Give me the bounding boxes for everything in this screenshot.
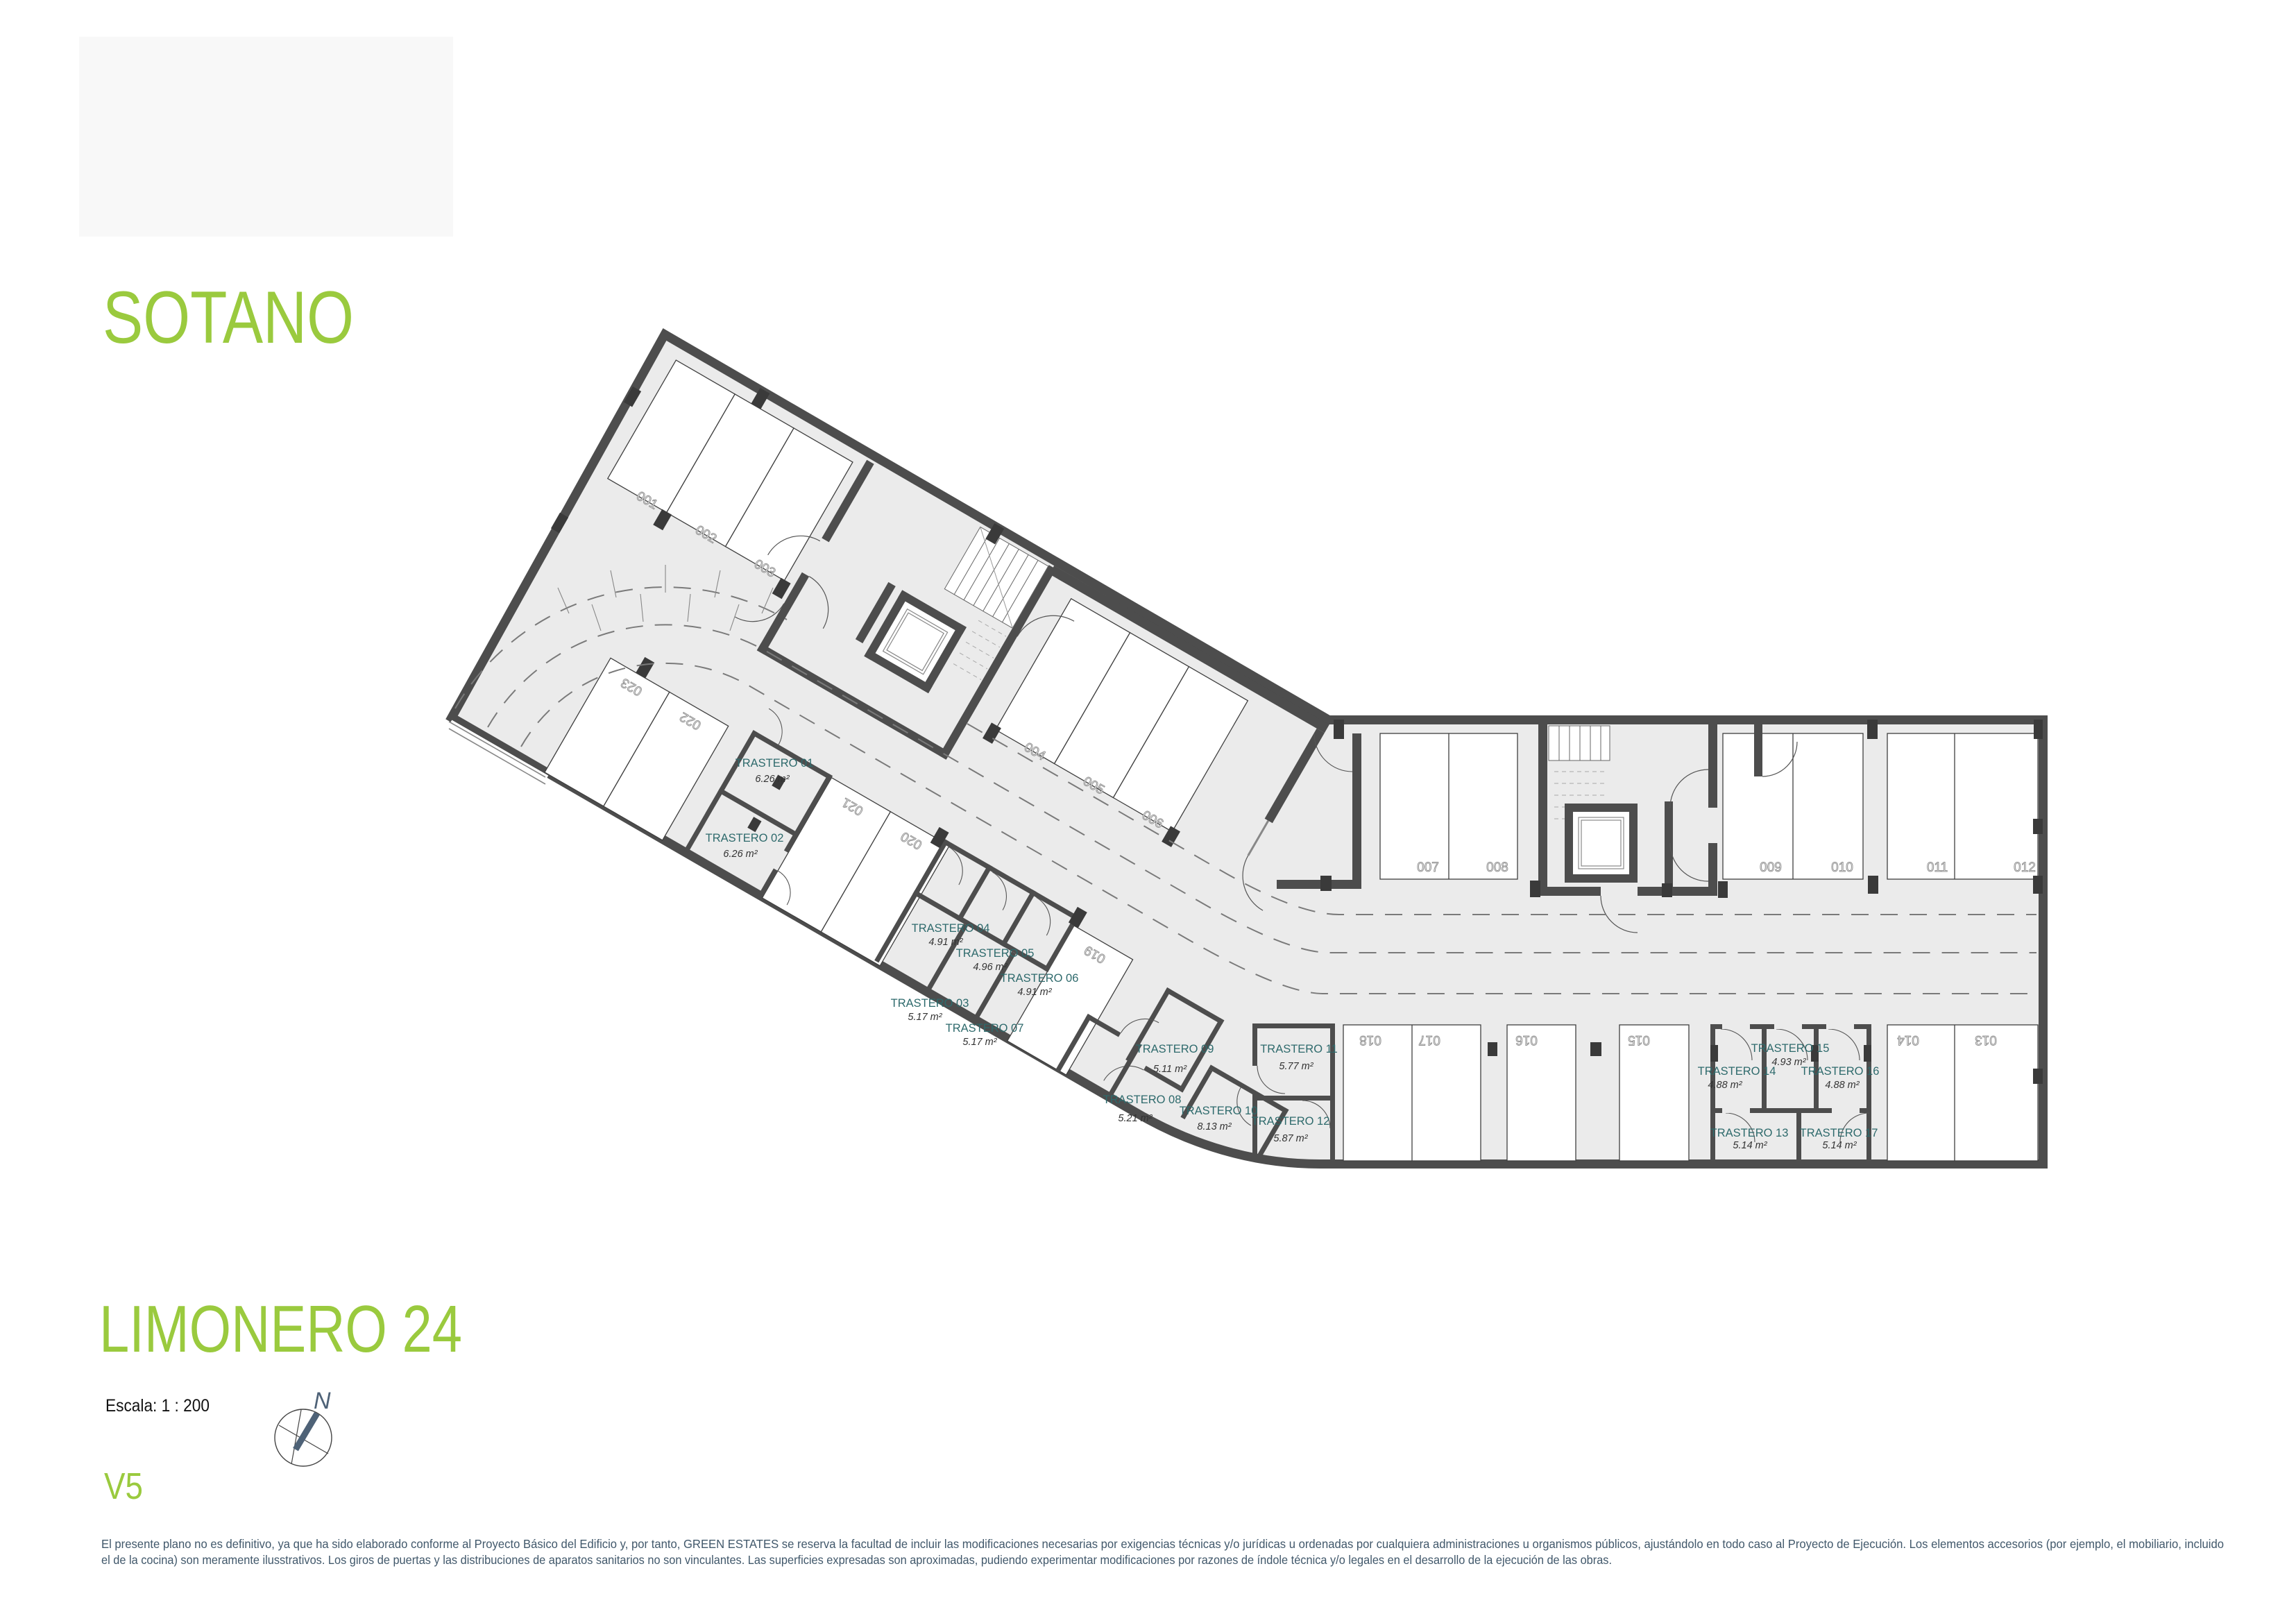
- svg-text:014: 014: [1897, 1033, 1919, 1047]
- svg-text:TRASTERO 17: TRASTERO 17: [1800, 1127, 1878, 1139]
- svg-text:5.14 m²: 5.14 m²: [1733, 1140, 1767, 1151]
- svg-text:TRASTERO 06: TRASTERO 06: [1001, 972, 1079, 985]
- svg-text:6.26 m²: 6.26 m²: [755, 774, 790, 785]
- svg-text:TRASTERO 04: TRASTERO 04: [912, 922, 990, 935]
- svg-text:TRASTERO 07: TRASTERO 07: [946, 1022, 1024, 1035]
- svg-text:5.21 m²: 5.21 m²: [1118, 1113, 1153, 1124]
- svg-text:5.17 m²: 5.17 m²: [962, 1037, 997, 1048]
- svg-text:TRASTERO 05: TRASTERO 05: [956, 947, 1035, 960]
- svg-text:007: 007: [1417, 860, 1439, 875]
- svg-text:TRASTERO 15: TRASTERO 15: [1751, 1042, 1830, 1055]
- svg-text:V5: V5: [104, 1465, 143, 1507]
- svg-text:010: 010: [1831, 860, 1853, 875]
- svg-text:TRASTERO 08: TRASTERO 08: [1103, 1094, 1182, 1106]
- svg-text:TRASTERO 13: TRASTERO 13: [1710, 1127, 1789, 1139]
- svg-text:LIMONERO 24: LIMONERO 24: [99, 1292, 462, 1366]
- svg-text:N: N: [314, 1388, 331, 1414]
- svg-text:009: 009: [1760, 860, 1782, 875]
- svg-text:TRASTERO 09: TRASTERO 09: [1136, 1043, 1214, 1055]
- svg-text:5.17 m²: 5.17 m²: [908, 1012, 942, 1023]
- svg-text:5.87 m²: 5.87 m²: [1273, 1133, 1308, 1144]
- svg-text:8.13 m²: 8.13 m²: [1197, 1121, 1232, 1132]
- svg-text:5.77 m²: 5.77 m²: [1279, 1061, 1313, 1072]
- svg-text:018: 018: [1359, 1033, 1381, 1047]
- svg-text:TRASTERO 01: TRASTERO 01: [735, 757, 814, 770]
- svg-text:5.11 m²: 5.11 m²: [1153, 1064, 1187, 1075]
- svg-text:4.88 m²: 4.88 m²: [1708, 1080, 1742, 1091]
- svg-text:017: 017: [1418, 1033, 1440, 1047]
- svg-text:TRASTERO 03: TRASTERO 03: [891, 997, 969, 1010]
- svg-text:5.14 m²: 5.14 m²: [1822, 1140, 1857, 1151]
- svg-text:4.91 m²: 4.91 m²: [1017, 987, 1052, 998]
- svg-text:4.88 m²: 4.88 m²: [1825, 1080, 1860, 1091]
- svg-text:TRASTERO 02: TRASTERO 02: [706, 832, 784, 844]
- svg-text:el de la cocina) son meramente: el de la cocina) son meramente ilusstrat…: [101, 1553, 1612, 1567]
- svg-text:TRASTERO 12: TRASTERO 12: [1252, 1115, 1330, 1128]
- svg-text:013: 013: [1975, 1033, 1997, 1047]
- svg-text:TRASTERO 10: TRASTERO 10: [1180, 1105, 1258, 1117]
- svg-text:SOTANO: SOTANO: [103, 275, 354, 359]
- svg-text:TRASTERO 16: TRASTERO 16: [1801, 1065, 1880, 1078]
- svg-text:011: 011: [1927, 860, 1948, 875]
- svg-text:6.26 m²: 6.26 m²: [723, 849, 758, 860]
- svg-text:4.96 m²: 4.96 m²: [973, 962, 1007, 973]
- svg-text:TRASTERO 14: TRASTERO 14: [1698, 1065, 1776, 1078]
- svg-text:4.91 m²: 4.91 m²: [928, 937, 963, 948]
- svg-text:008: 008: [1486, 860, 1508, 875]
- svg-text:Escala: 1 : 200: Escala: 1 : 200: [105, 1396, 210, 1416]
- svg-text:016: 016: [1515, 1033, 1538, 1047]
- svg-text:012: 012: [2014, 860, 2036, 875]
- svg-text:015: 015: [1628, 1033, 1650, 1047]
- svg-text:TRASTERO 11: TRASTERO 11: [1260, 1043, 1338, 1055]
- svg-text:El presente plano no es defini: El presente plano no es definitivo, ya q…: [101, 1537, 2224, 1551]
